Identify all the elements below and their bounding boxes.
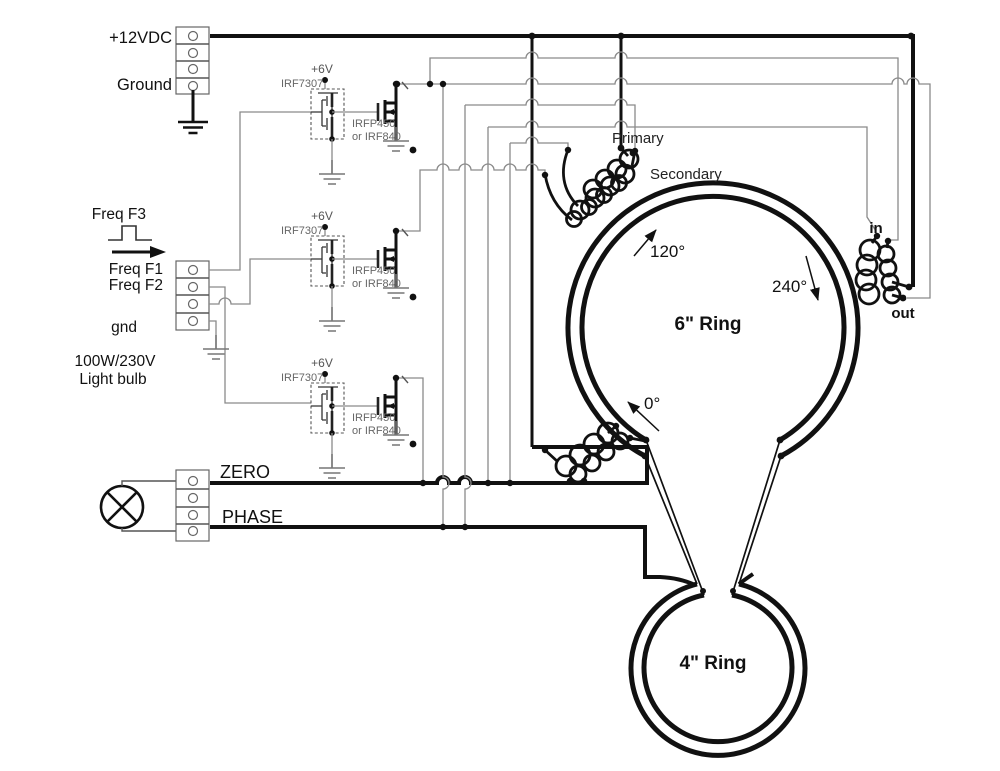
angle-240-label: 240° [772,277,807,296]
driver-ground-symbol [319,160,345,184]
zero-position-coil [542,423,645,484]
supply-terminal-block [176,27,209,133]
zero-label: ZERO [220,462,270,482]
driver1-vcc-label: +6V [311,62,333,76]
freq-terminal-block [176,112,311,403]
driver1-fet-alt-label: or IRF840 [352,131,401,143]
driver3-vcc-label: +6V [311,356,333,370]
load-terminal-block [176,470,209,541]
load-power-label: 100W/230V [75,353,157,370]
driver2-fet-label: IRFP450 [352,265,395,277]
gnd-label: gnd [111,319,137,336]
lamp-icon [101,481,176,531]
driver1-ic-label: IRF7307 [281,78,323,90]
driver2-fet-alt-label: or IRF840 [352,278,401,290]
in-out-coil [856,233,909,304]
driver2-ic-label: IRF7307 [281,225,323,237]
load-name-label: Light bulb [79,371,146,388]
ring4-label: 4" Ring [679,653,746,674]
ring6-label: 6" Ring [674,314,741,335]
wire-harness [394,52,930,530]
primary-label: Primary [612,130,664,147]
freq-f2-label: Freq F2 [109,277,163,294]
phase-wire [210,527,753,585]
angle-0-label: 0° [644,394,660,413]
driver2-vcc-label: +6V [311,209,333,223]
angle-120-label: 120° [650,242,685,261]
ring-horns [645,440,781,595]
supply-label: +12VDC [109,29,172,47]
driver3-fet-label: IRFP450 [352,412,395,424]
coil-in-label: in [869,220,882,237]
ground-label: Ground [117,76,172,94]
pulse-waveform-icon [108,226,152,240]
driver1-fet-label: IRFP450 [352,118,395,130]
schematic-canvas: +12VDC Ground Freq F3 Freq F1 Freq F2 gn… [0,0,1000,771]
signal-arrow-icon [112,246,166,258]
secondary-label: Secondary [650,166,722,183]
phase-label: PHASE [222,507,283,527]
main-ground-symbol [178,108,208,133]
driver3-fet-alt-label: or IRF840 [352,425,401,437]
coil-out-label: out [891,305,914,322]
schematic-page: +12VDC Ground Freq F3 Freq F1 Freq F2 gn… [0,0,1000,771]
freq-f1-label: Freq F1 [109,261,163,278]
driver3-ic-label: IRF7307 [281,372,323,384]
freq-f3-label: Freq F3 [92,206,146,223]
